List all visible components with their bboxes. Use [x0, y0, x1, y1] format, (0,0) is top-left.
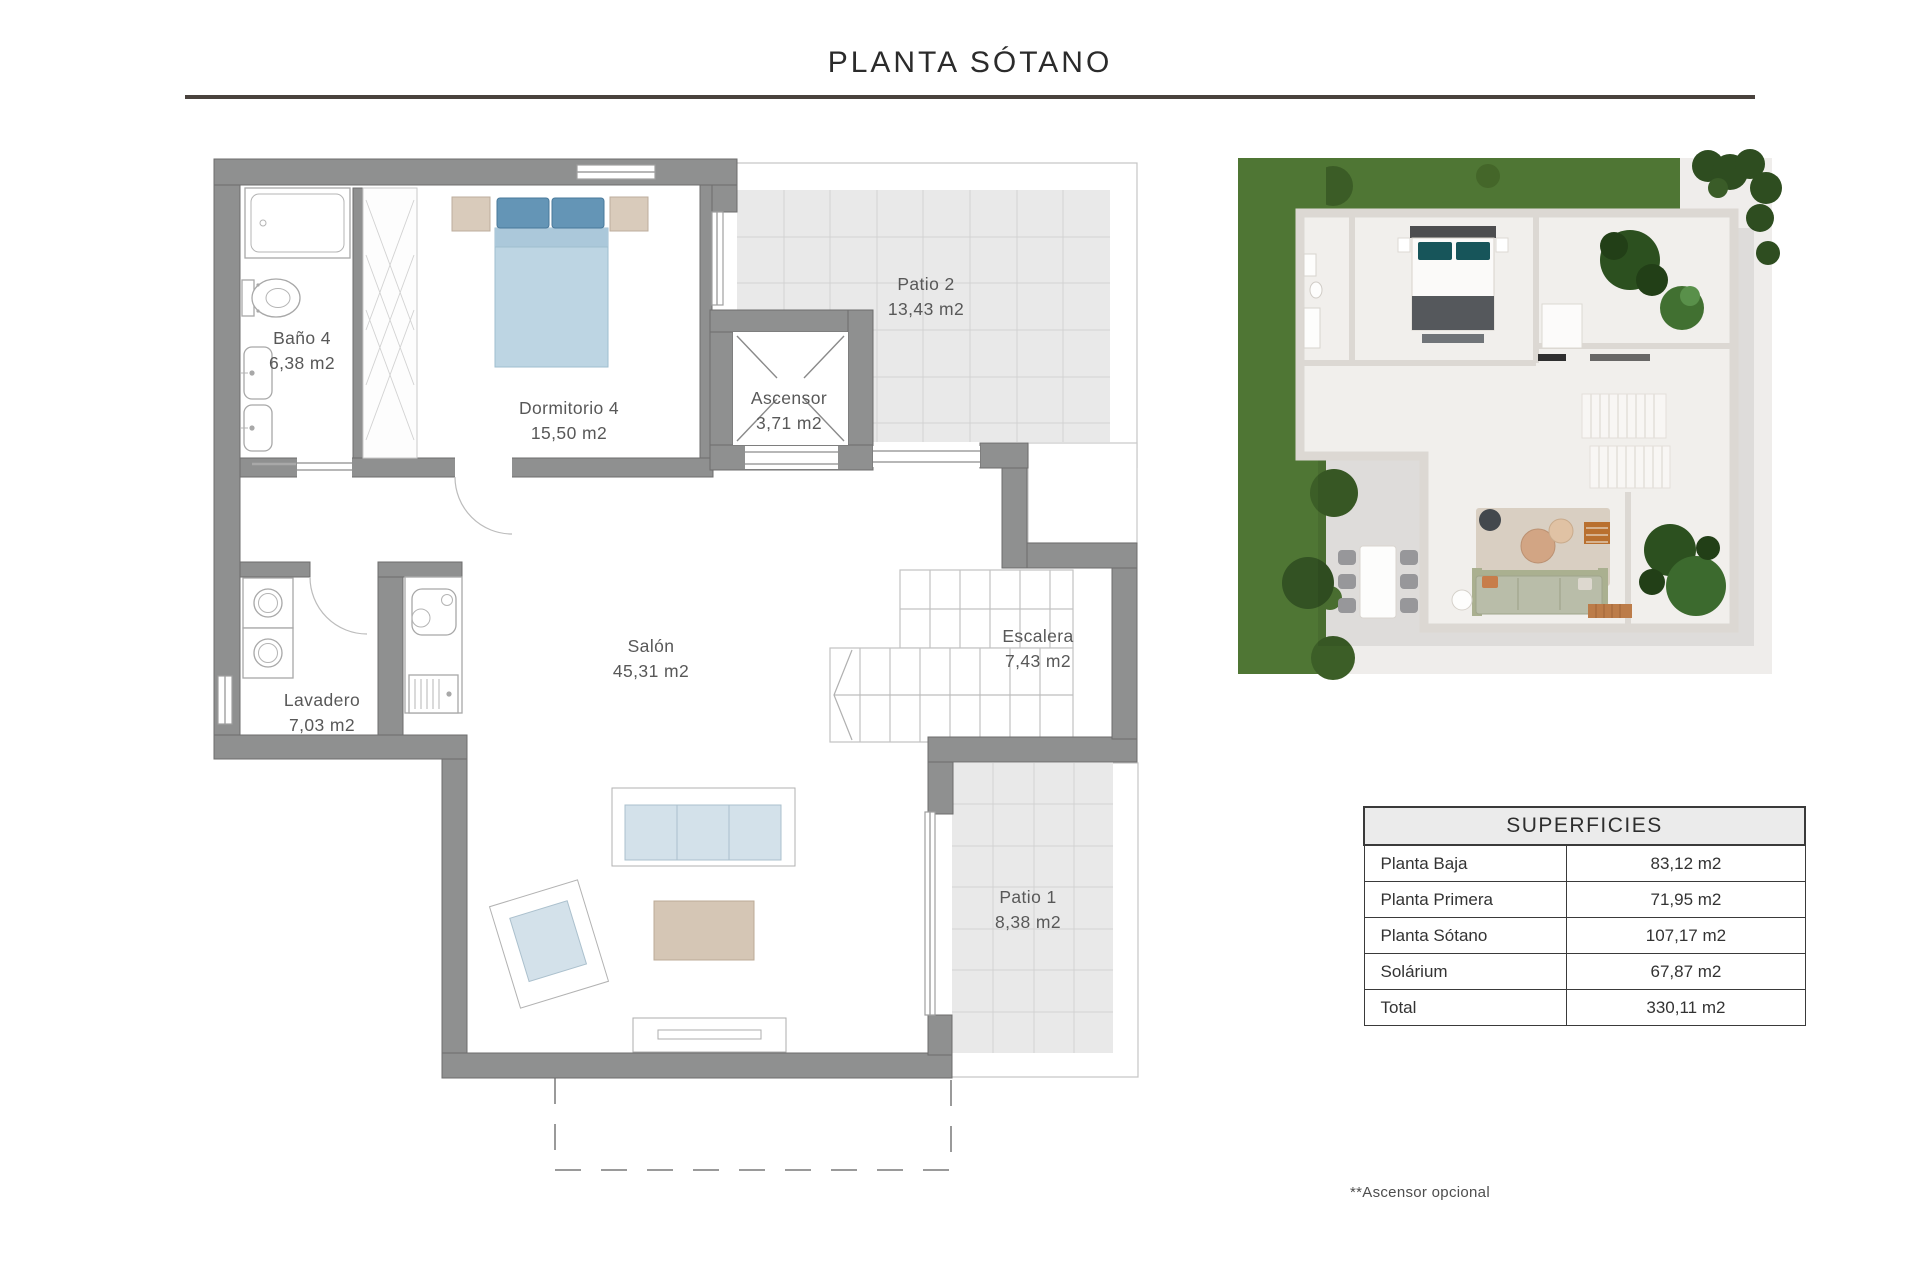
- row-value: 107,17 m2: [1567, 918, 1805, 954]
- area-bano4: 6,38 m2: [269, 353, 335, 373]
- label-ascensor: Ascensor: [751, 388, 827, 408]
- mattress: [495, 228, 608, 367]
- bedroom-door-arc: [455, 477, 512, 534]
- table-row: Planta Sótano 107,17 m2: [1364, 918, 1805, 954]
- toilet: [242, 279, 300, 317]
- floor-plan-canvas: Baño 4 6,38 m2 Dormitorio 4 15,50 m2 Asc…: [0, 0, 1920, 1280]
- row-value: 330,11 m2: [1567, 990, 1805, 1026]
- area-patio2: 13,43 m2: [888, 299, 964, 319]
- row-label: Solárium: [1364, 954, 1567, 990]
- porch-outline: [555, 1078, 951, 1170]
- bathroom-fixtures: [240, 188, 350, 464]
- tv-unit: [633, 1018, 786, 1052]
- row-value: 67,87 m2: [1567, 954, 1805, 990]
- label-patio1: Patio 1: [999, 887, 1056, 907]
- overview-dining-table: [1338, 546, 1418, 618]
- overview-render: [1238, 149, 1782, 680]
- bed-sheet-band: [495, 228, 608, 247]
- bathtub: [245, 188, 350, 258]
- stair-landing-room: [1028, 443, 1137, 543]
- row-label: Planta Sótano: [1364, 918, 1567, 954]
- coffee-table: [654, 901, 754, 960]
- row-label: Planta Primera: [1364, 882, 1567, 918]
- area-lavadero: 7,03 m2: [289, 715, 355, 735]
- armchair: [490, 880, 609, 1008]
- nightstand-left: [452, 197, 490, 231]
- area-salon: 45,31 m2: [613, 661, 689, 681]
- label-lavadero: Lavadero: [284, 690, 360, 710]
- row-value: 71,95 m2: [1567, 882, 1805, 918]
- nightstand-right: [610, 197, 648, 231]
- label-bano4: Baño 4: [273, 328, 331, 348]
- salon-furniture: [490, 788, 795, 1052]
- wardrobe: [363, 188, 417, 458]
- table-row: Solárium 67,87 m2: [1364, 954, 1805, 990]
- sofa: [612, 788, 795, 866]
- floor-plan: Baño 4 6,38 m2 Dormitorio 4 15,50 m2 Asc…: [214, 159, 1138, 1170]
- laundry-door-arc: [310, 577, 367, 634]
- table-header: SUPERFICIES: [1364, 807, 1805, 845]
- row-label: Total: [1364, 990, 1567, 1026]
- page: PLANTA SÓTANO: [0, 0, 1920, 1280]
- table-row: Planta Primera 71,95 m2: [1364, 882, 1805, 918]
- area-patio1: 8,38 m2: [995, 912, 1061, 932]
- label-patio2: Patio 2: [897, 274, 954, 294]
- surfaces-table: SUPERFICIES Planta Baja 83,12 m2 Planta …: [1363, 806, 1806, 1026]
- corridor-window: [873, 446, 980, 467]
- bedroom-door-gap: [455, 456, 512, 479]
- table-row: Total 330,11 m2: [1364, 990, 1805, 1026]
- bathroom-door-gap: [297, 456, 352, 479]
- area-dormitorio4: 15,50 m2: [531, 423, 607, 443]
- area-escalera: 7,43 m2: [1005, 651, 1071, 671]
- pillow-left: [497, 198, 549, 228]
- washbasin-2: [240, 405, 272, 451]
- dryer: [243, 628, 293, 678]
- area-ascensor: 3,71 m2: [756, 413, 822, 433]
- laundry-counter: [405, 577, 462, 713]
- label-escalera: Escalera: [1002, 626, 1073, 646]
- table-header-row: SUPERFICIES: [1364, 807, 1805, 845]
- row-value: 83,12 m2: [1567, 845, 1805, 882]
- label-salon: Salón: [628, 636, 675, 656]
- row-label: Planta Baja: [1364, 845, 1567, 882]
- pillow-right: [552, 198, 604, 228]
- overview-deck: [1588, 604, 1632, 618]
- label-dormitorio4: Dormitorio 4: [519, 398, 619, 418]
- overview-sofa: [1472, 568, 1608, 616]
- bed: [452, 197, 648, 367]
- overview-bench: [1584, 522, 1610, 544]
- washbasin: [240, 347, 272, 399]
- washer: [243, 578, 293, 628]
- table-row: Planta Baja 83,12 m2: [1364, 845, 1805, 882]
- footnote: **Ascensor opcional: [1350, 1184, 1490, 1201]
- elevator-door-gap: [745, 446, 838, 469]
- overview-bed: [1398, 226, 1508, 343]
